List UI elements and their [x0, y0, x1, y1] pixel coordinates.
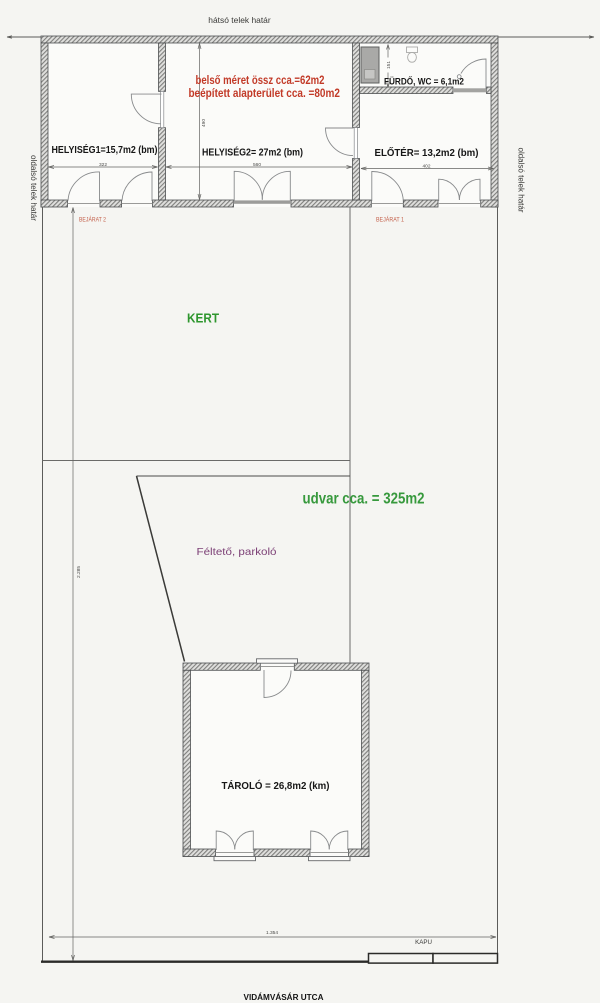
svg-text:ELŐTÉR= 13,2m2 (bm): ELŐTÉR= 13,2m2 (bm) — [375, 146, 479, 159]
svg-text:FÜRDŐ, WC = 6,1m2: FÜRDŐ, WC = 6,1m2 — [384, 76, 464, 87]
svg-text:udvar cca. = 325m2: udvar cca. = 325m2 — [303, 490, 425, 507]
svg-text:TÁROLÓ = 26,8m2 (km): TÁROLÓ = 26,8m2 (km) — [222, 780, 330, 792]
svg-text:402: 402 — [422, 164, 430, 170]
svg-text:belső méret össz cca.=62m2: belső méret össz cca.=62m2 — [196, 75, 325, 87]
svg-text:oldalsó telek határ: oldalsó telek határ — [29, 155, 38, 221]
svg-text:BEJÁRAT 2: BEJÁRAT 2 — [79, 215, 106, 224]
svg-text:322: 322 — [99, 162, 107, 168]
svg-text:VIDÁMVÁSÁR UTCA: VIDÁMVÁSÁR UTCA — [244, 992, 324, 1002]
svg-text:2.285: 2.285 — [76, 566, 82, 578]
svg-text:HELYISÉG2= 27m2 (bm): HELYISÉG2= 27m2 (bm) — [202, 146, 303, 159]
svg-text:beépített alapterület cca. =80: beépített alapterület cca. =80m2 — [188, 88, 340, 100]
svg-text:490: 490 — [201, 119, 207, 127]
svg-text:KERT: KERT — [187, 312, 219, 326]
svg-text:BEJÁRAT 1: BEJÁRAT 1 — [376, 215, 404, 224]
svg-text:HELYISÉG1=15,7m2 (bm): HELYISÉG1=15,7m2 (bm) — [52, 143, 158, 156]
svg-text:oldalsó telek határ: oldalsó telek határ — [517, 148, 526, 213]
svg-text:KAPU: KAPU — [415, 939, 432, 946]
svg-text:151: 151 — [386, 61, 392, 69]
svg-text:hátsó telek határ: hátsó telek határ — [208, 15, 271, 25]
svg-text:560: 560 — [253, 162, 261, 168]
svg-text:Féltető, parkoló: Féltető, parkoló — [197, 547, 277, 558]
svg-text:1.354: 1.354 — [266, 930, 278, 936]
